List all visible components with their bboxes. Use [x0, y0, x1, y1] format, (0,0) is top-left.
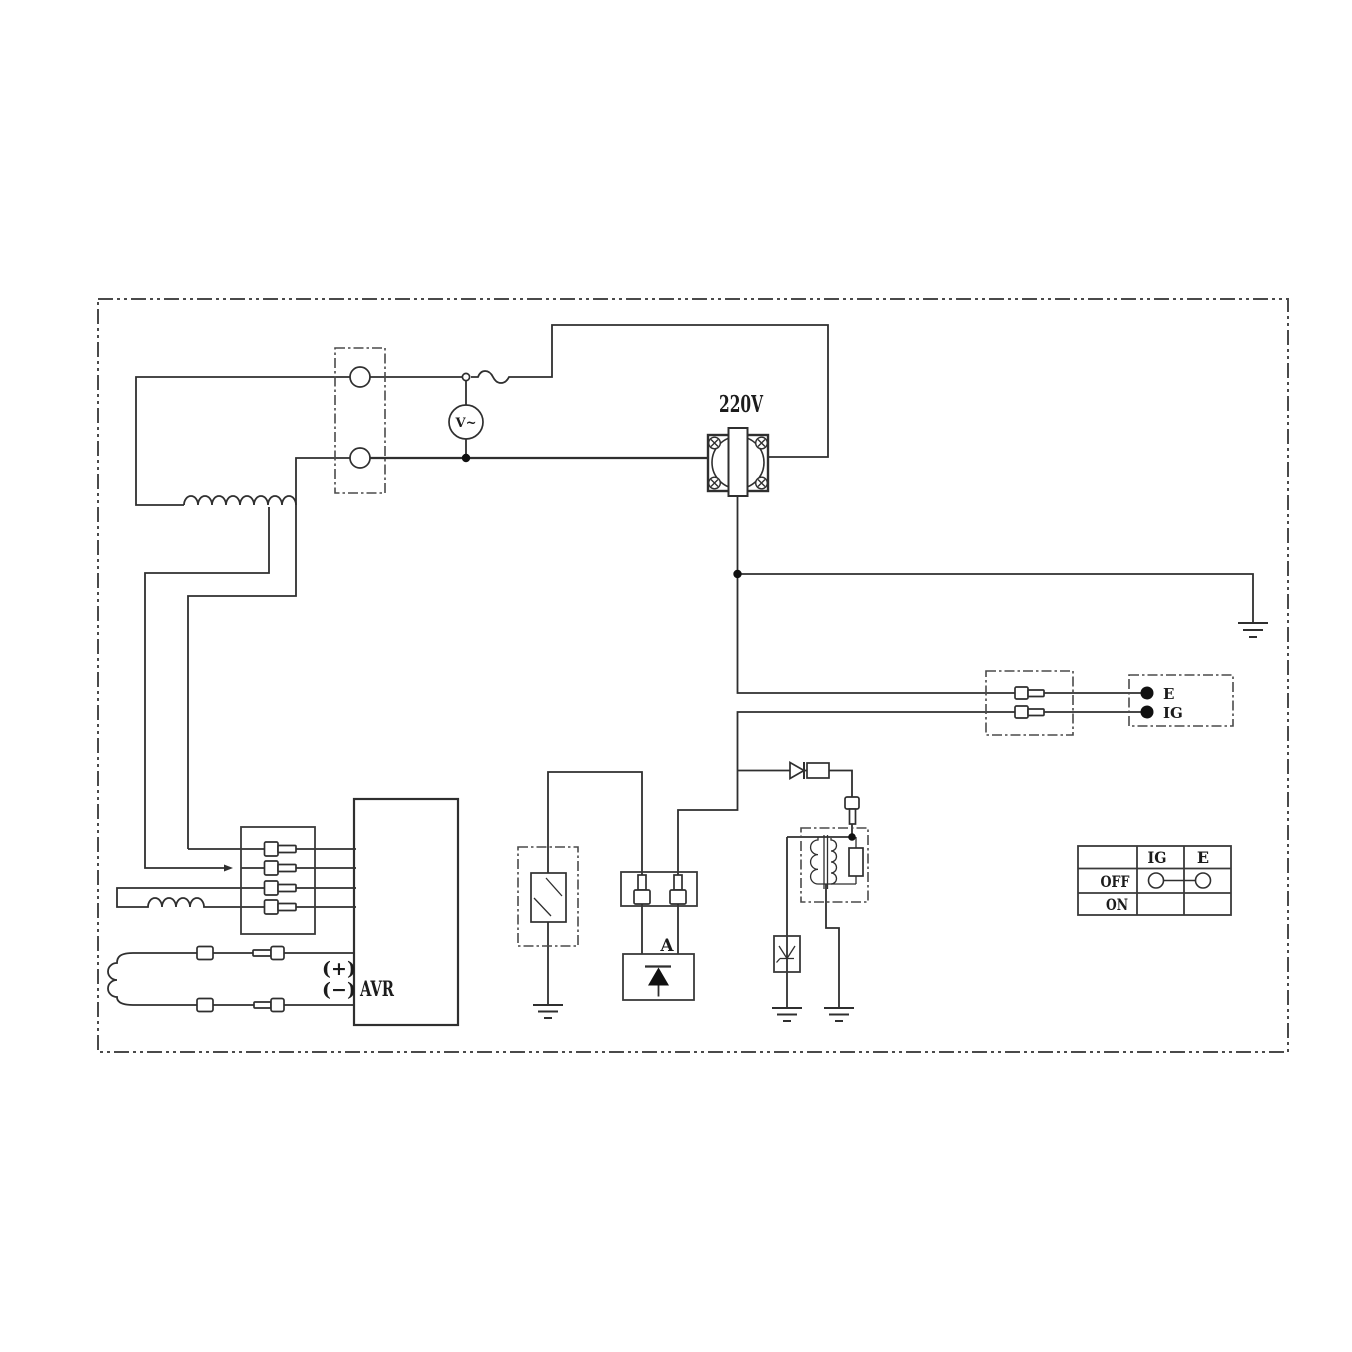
earth-ground-icon	[772, 1008, 802, 1021]
outlet-voltage-label: 220V	[719, 391, 764, 418]
table-col-ig: IG	[1148, 848, 1167, 867]
terminal-e-dot	[1141, 687, 1154, 700]
table-col-e: E	[1197, 848, 1209, 867]
junction-dot	[462, 454, 470, 462]
spark-plug-cap	[845, 797, 859, 824]
terminal-ig-label: IG	[1163, 704, 1183, 722]
avr-plus-label: (+)	[322, 958, 356, 980]
earth-ground-icon	[824, 1008, 854, 1021]
contact-circle-e	[1196, 873, 1211, 888]
engine-terminals: E IG	[1129, 675, 1233, 726]
switch-position-table: IG E OFF ON	[1078, 846, 1231, 915]
output-terminal-top	[350, 367, 370, 387]
wiring-diagram: V~ 220V E IG	[0, 0, 1352, 1352]
diode-symbol	[648, 968, 669, 986]
stator-main-winding	[184, 496, 296, 505]
diagram-border	[98, 299, 1288, 1052]
coil-primary	[811, 837, 818, 884]
wire-arrow	[224, 865, 233, 872]
coil-secondary	[831, 838, 837, 884]
contact-circle-ig	[1149, 873, 1164, 888]
tap-node	[462, 373, 469, 380]
terminal-ig-dot	[1141, 706, 1154, 719]
junction-dot	[848, 833, 856, 841]
avr-label: AVR	[359, 976, 394, 1001]
engine-terminal-connector	[986, 671, 1073, 735]
sub-winding	[117, 888, 356, 907]
output-terminal-bottom	[350, 448, 370, 468]
rectifier-label: A	[659, 936, 674, 956]
avr-unit: (+) (−) AVR	[322, 799, 458, 1025]
lamp-connector-2pin	[621, 872, 697, 906]
outlet-slot	[729, 428, 748, 496]
table-row-off: OFF	[1101, 872, 1131, 891]
winding-connector-4pin	[241, 827, 315, 934]
charging-winding	[108, 953, 133, 1005]
earth-ground-icon	[533, 1005, 563, 1018]
generator-terminal-block	[335, 348, 385, 493]
junction-dot	[733, 570, 741, 578]
rectifier-unit: A	[623, 936, 694, 1000]
earth-ground-icon	[1238, 623, 1268, 637]
terminal-e-label: E	[1163, 685, 1174, 703]
table-row-on: ON	[1106, 895, 1128, 914]
coil-resistor	[849, 848, 863, 876]
ignition-diode	[790, 762, 829, 779]
coil-core	[824, 835, 828, 889]
avr-minus-label: (−)	[322, 979, 356, 1001]
page: V~ 220V E IG	[0, 0, 1352, 1352]
charging-connectors	[197, 947, 284, 1012]
voltmeter-label: V~	[455, 416, 477, 431]
